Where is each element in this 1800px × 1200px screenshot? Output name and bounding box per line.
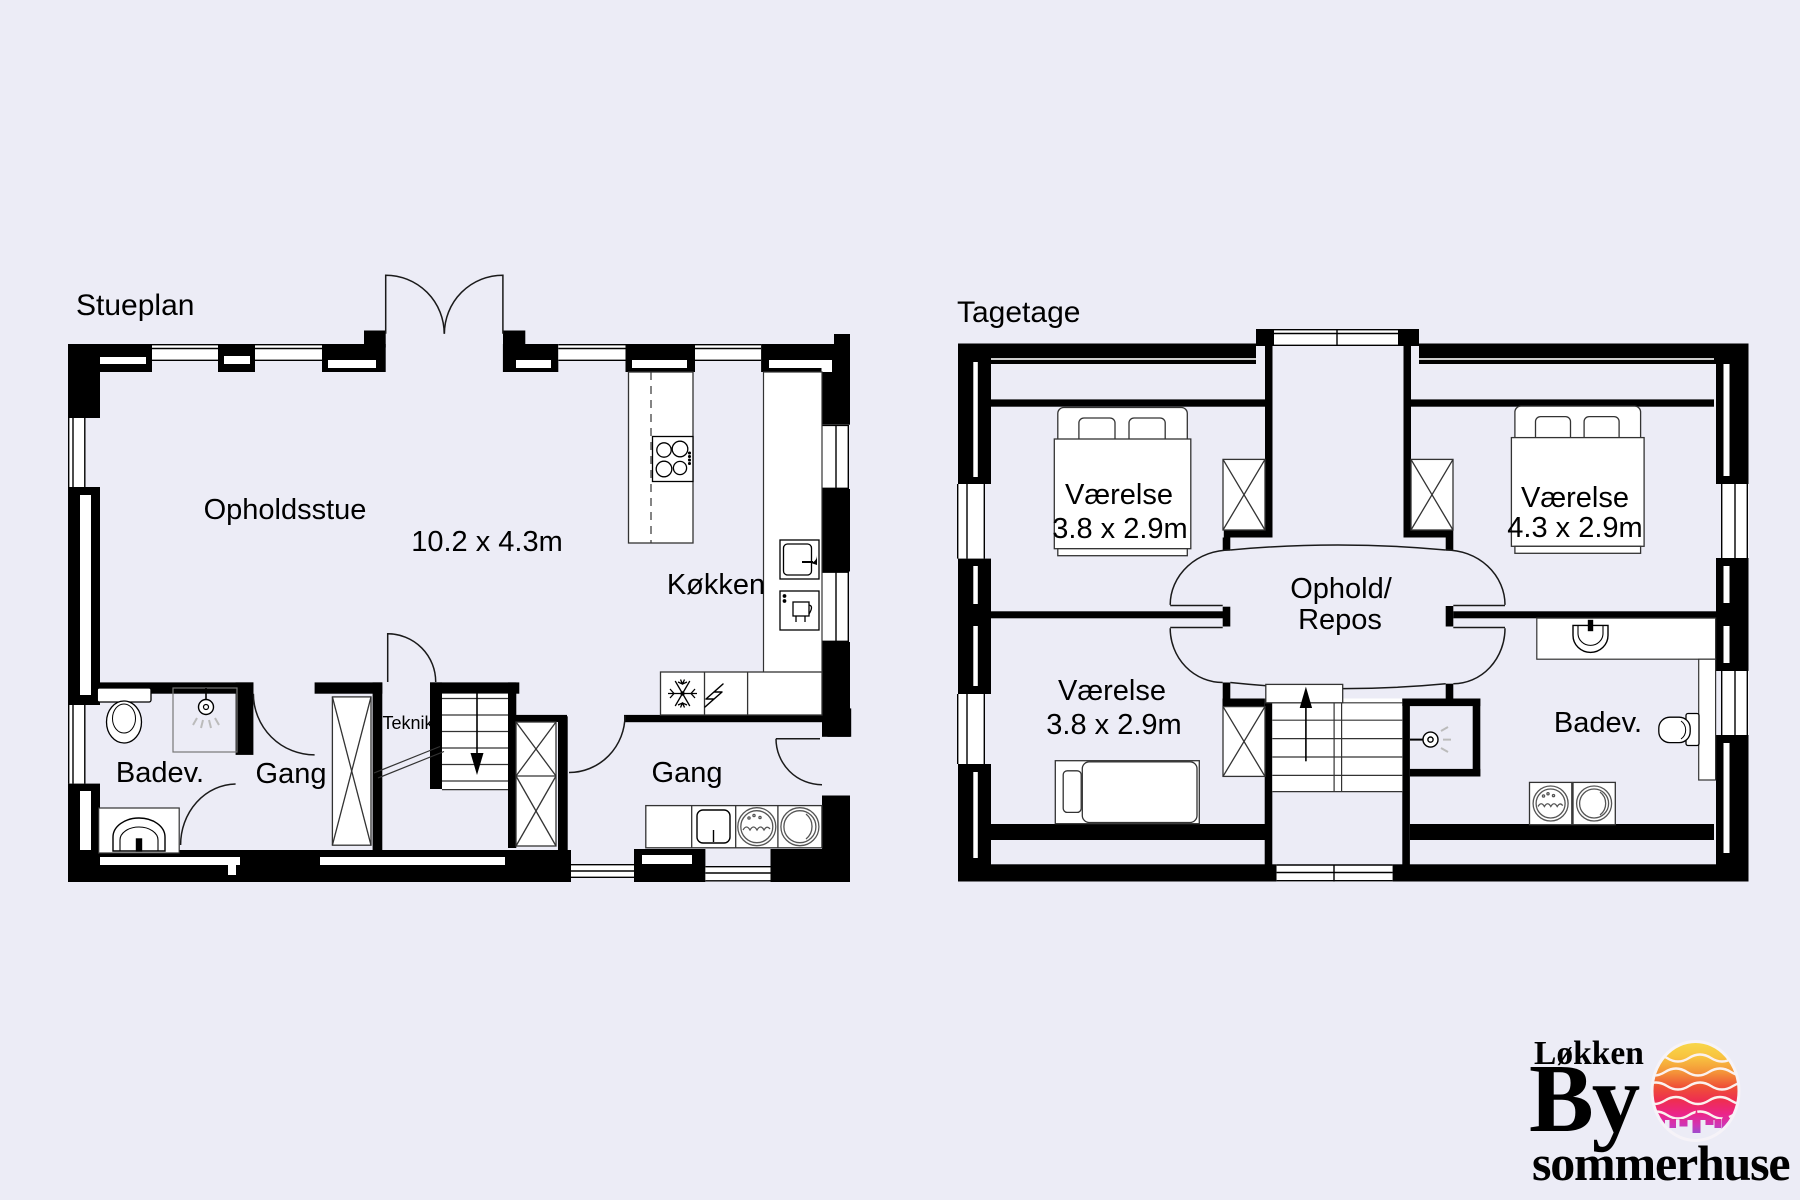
svg-text:3.8 x 2.9m: 3.8 x 2.9m xyxy=(1046,709,1181,741)
svg-text:Køkken: Køkken xyxy=(667,569,765,601)
svg-text:Stueplan: Stueplan xyxy=(76,289,194,322)
svg-text:Opholdsstue: Opholdsstue xyxy=(204,494,367,526)
svg-text:Badev.: Badev. xyxy=(1554,707,1642,739)
svg-text:Repos: Repos xyxy=(1298,604,1382,636)
svg-text:3.8 x 2.9m: 3.8 x 2.9m xyxy=(1052,513,1187,545)
svg-text:Ophold/: Ophold/ xyxy=(1290,573,1393,605)
svg-text:Tagetage: Tagetage xyxy=(957,296,1080,329)
svg-text:Værelse: Værelse xyxy=(1065,479,1173,511)
svg-text:4.3 x 2.9m: 4.3 x 2.9m xyxy=(1507,512,1642,544)
svg-text:Gang: Gang xyxy=(652,757,723,789)
svg-text:Gang: Gang xyxy=(256,758,327,790)
svg-text:Værelse: Værelse xyxy=(1521,482,1629,514)
svg-text:Badev.: Badev. xyxy=(116,757,204,789)
svg-text:sommerhuse: sommerhuse xyxy=(1532,1135,1789,1191)
svg-text:Værelse: Værelse xyxy=(1058,675,1166,707)
svg-text:10.2 x 4.3m: 10.2 x 4.3m xyxy=(411,526,563,558)
svg-text:Teknik: Teknik xyxy=(382,713,434,733)
